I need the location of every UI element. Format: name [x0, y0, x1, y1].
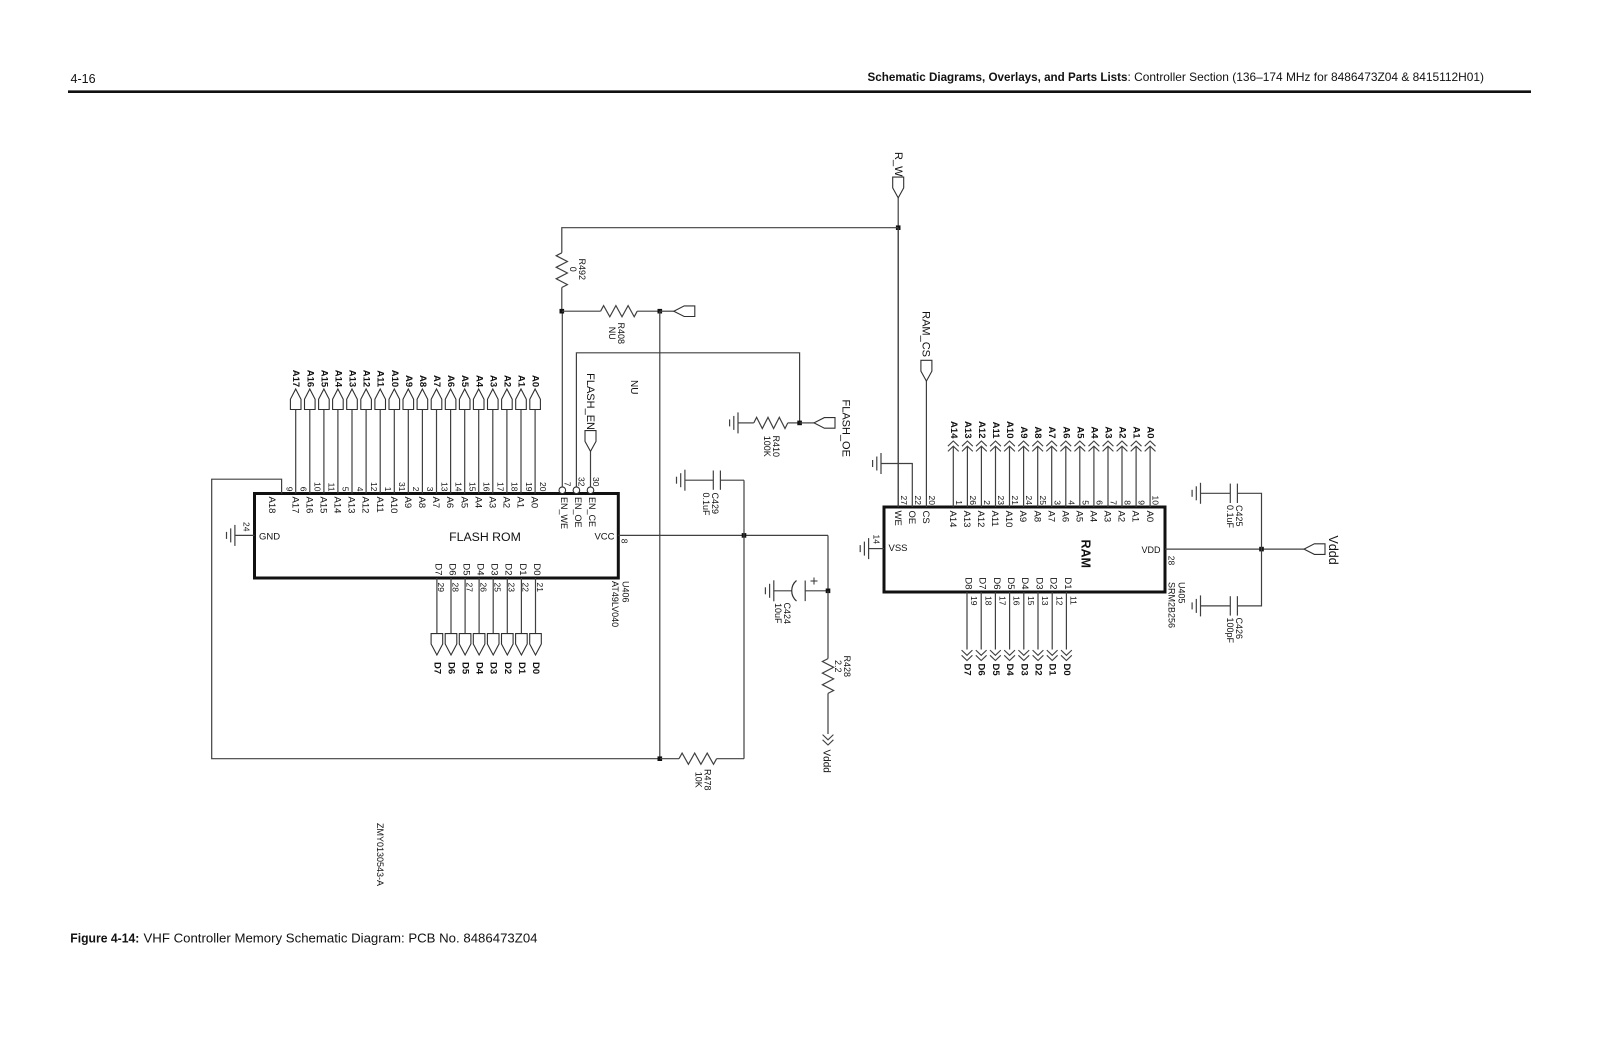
svg-text:A7: A7 [1046, 426, 1057, 438]
svg-text:23: 23 [507, 583, 517, 593]
svg-text:D1: D1 [1062, 577, 1073, 589]
svg-text:18: 18 [510, 482, 520, 492]
svg-text:A14: A14 [948, 421, 959, 439]
svg-text:A15: A15 [318, 370, 329, 388]
svg-text:A3: A3 [487, 375, 498, 387]
svg-text:A9: A9 [403, 375, 414, 387]
svg-text:23: 23 [996, 496, 1006, 506]
svg-text:11: 11 [1069, 596, 1079, 605]
svg-text:A17: A17 [290, 370, 301, 387]
svg-text:A1: A1 [515, 497, 526, 509]
svg-text:U406: U406 [621, 581, 631, 603]
svg-text:A8: A8 [1032, 426, 1043, 438]
svg-text:24: 24 [241, 522, 251, 532]
svg-text:A0: A0 [1144, 511, 1155, 523]
svg-text:CS: CS [920, 511, 931, 524]
svg-text:VHF Controller Memory Schemati: VHF Controller Memory Schematic Diagram:… [144, 932, 538, 946]
svg-text:21: 21 [1010, 496, 1020, 506]
svg-text:A1: A1 [516, 375, 527, 388]
svg-text:D5: D5 [461, 563, 472, 575]
svg-text:6: 6 [1095, 500, 1105, 505]
svg-text:10: 10 [313, 482, 323, 492]
svg-text:Vddd: Vddd [1326, 536, 1340, 565]
svg-text:A2: A2 [1116, 511, 1127, 523]
svg-text:A13: A13 [961, 511, 972, 528]
svg-text:25: 25 [1038, 496, 1048, 506]
svg-text:A7: A7 [431, 375, 442, 387]
svg-text:VSS: VSS [889, 543, 908, 554]
svg-text:RAM_CS: RAM_CS [920, 311, 932, 357]
svg-text:A1: A1 [1131, 426, 1142, 439]
svg-text:D3: D3 [488, 662, 499, 674]
svg-text:VDD: VDD [1141, 545, 1161, 555]
svg-text:EN_WE: EN_WE [559, 497, 569, 529]
svg-text:SRM2B256: SRM2B256 [1167, 582, 1177, 628]
svg-text:D1: D1 [1047, 664, 1058, 677]
svg-text:15: 15 [467, 482, 477, 492]
svg-text:A15: A15 [318, 497, 329, 514]
svg-text:NU: NU [628, 380, 639, 394]
svg-text:A10: A10 [389, 370, 400, 387]
svg-text:100K: 100K [762, 436, 772, 457]
svg-text:D8: D8 [962, 577, 973, 589]
svg-text:0.1uF: 0.1uF [1225, 505, 1235, 529]
svg-text:A17: A17 [289, 497, 300, 514]
svg-text:D6: D6 [446, 563, 457, 575]
svg-text:A12: A12 [975, 511, 986, 528]
svg-text:D2: D2 [502, 662, 513, 674]
svg-text:A10: A10 [388, 497, 399, 514]
svg-text:A0: A0 [529, 497, 540, 509]
svg-text:D3: D3 [489, 563, 500, 575]
svg-text:FLASH_OE: FLASH_OE [840, 400, 852, 457]
svg-text:R_W: R_W [892, 152, 904, 177]
svg-text:D5: D5 [990, 664, 1001, 677]
svg-text:0.1uF: 0.1uF [701, 493, 711, 517]
svg-text:A0: A0 [1145, 426, 1156, 438]
svg-text:Vddd: Vddd [820, 750, 831, 773]
svg-text:A16: A16 [303, 497, 314, 514]
svg-text:31: 31 [397, 482, 407, 492]
svg-text:A13: A13 [346, 497, 357, 514]
svg-text:U405: U405 [1176, 582, 1186, 604]
svg-text:25: 25 [493, 583, 503, 593]
svg-text:GND: GND [259, 532, 280, 543]
svg-text:D6: D6 [446, 662, 457, 674]
svg-text:3: 3 [425, 487, 435, 492]
svg-text:D1: D1 [516, 662, 527, 675]
svg-text:7: 7 [563, 482, 573, 487]
svg-text:2: 2 [411, 487, 421, 492]
svg-text:A9: A9 [1018, 426, 1029, 438]
svg-text:A12: A12 [361, 370, 372, 387]
svg-text:A6: A6 [1059, 511, 1070, 523]
svg-text:3: 3 [1052, 500, 1062, 505]
svg-text:D0: D0 [530, 662, 541, 674]
svg-text:28: 28 [1166, 556, 1176, 566]
svg-text:0: 0 [568, 267, 578, 272]
svg-text:D6: D6 [976, 664, 987, 676]
svg-text:Schematic Diagrams, Overlays,: Schematic Diagrams, Overlays, and Parts … [868, 70, 1128, 84]
svg-text:D5: D5 [1005, 577, 1016, 589]
svg-text:13: 13 [1040, 596, 1050, 606]
svg-text:A5: A5 [459, 375, 470, 388]
svg-text:A5: A5 [1074, 511, 1085, 523]
svg-text:19: 19 [969, 596, 979, 606]
svg-text:14: 14 [872, 535, 882, 545]
svg-text:A6: A6 [1060, 426, 1071, 438]
svg-text:D0: D0 [531, 563, 542, 575]
svg-text:4-16: 4-16 [71, 72, 96, 86]
svg-text:10: 10 [1151, 496, 1161, 506]
svg-text:FLASH_EN: FLASH_EN [584, 373, 596, 430]
svg-text:30: 30 [591, 477, 601, 487]
svg-text:D1: D1 [517, 563, 528, 575]
svg-text:A4: A4 [472, 497, 483, 509]
svg-text:A14: A14 [333, 370, 344, 388]
svg-text:A11: A11 [990, 422, 1001, 440]
svg-text:12: 12 [369, 482, 379, 492]
svg-text:A8: A8 [416, 497, 427, 509]
svg-text:1: 1 [383, 487, 393, 492]
svg-text:A13: A13 [962, 421, 973, 438]
svg-text:D7: D7 [431, 662, 442, 674]
svg-text:A3: A3 [486, 497, 497, 509]
svg-text:20: 20 [538, 482, 548, 492]
svg-text:ZMY0130543-A: ZMY0130543-A [375, 823, 385, 886]
svg-text:28: 28 [450, 583, 460, 593]
svg-text:22: 22 [913, 496, 923, 506]
svg-text:A2: A2 [501, 375, 512, 387]
svg-text:A7: A7 [430, 497, 441, 509]
svg-text:Figure 4-14:: Figure 4-14: [70, 932, 139, 946]
svg-text:A13: A13 [347, 370, 358, 387]
svg-text:A2: A2 [1117, 426, 1128, 438]
svg-text:5: 5 [1080, 500, 1090, 505]
svg-text:18: 18 [983, 596, 993, 606]
svg-text:OE: OE [906, 511, 917, 525]
svg-text:WE: WE [892, 511, 903, 526]
svg-text:D6: D6 [991, 577, 1002, 589]
svg-text:A0: A0 [530, 375, 541, 387]
svg-text:10uF: 10uF [773, 603, 783, 624]
svg-text:D4: D4 [474, 662, 485, 675]
svg-text:27: 27 [464, 583, 474, 593]
svg-text:17: 17 [998, 596, 1008, 606]
svg-text:A5: A5 [458, 497, 469, 509]
svg-text:FLASH ROM: FLASH ROM [449, 530, 521, 544]
svg-text:A10: A10 [1003, 511, 1014, 528]
svg-text:16: 16 [1012, 596, 1022, 606]
svg-text:A12: A12 [976, 421, 987, 438]
svg-text:D4: D4 [1019, 577, 1030, 589]
svg-text:16: 16 [482, 482, 492, 492]
svg-text:A11: A11 [989, 511, 1000, 527]
svg-text:A3: A3 [1102, 511, 1113, 523]
svg-text:A8: A8 [417, 375, 428, 387]
svg-text:D7: D7 [432, 563, 443, 575]
svg-text:D7: D7 [977, 577, 988, 589]
svg-text:VCC: VCC [594, 532, 614, 543]
svg-text:17: 17 [496, 482, 506, 492]
svg-text:D2: D2 [503, 563, 514, 575]
svg-text:9: 9 [285, 487, 295, 492]
svg-text:: Controller Section (136–174: : Controller Section (136–174 MHz for 84… [1128, 70, 1485, 84]
svg-text:11: 11 [327, 483, 337, 492]
svg-text:D4: D4 [1004, 664, 1015, 677]
svg-text:A4: A4 [1088, 511, 1099, 523]
svg-text:EN_CE: EN_CE [587, 497, 597, 527]
svg-text:D3: D3 [1033, 577, 1044, 589]
svg-text:14: 14 [453, 482, 463, 492]
svg-text:D7: D7 [962, 664, 973, 676]
svg-text:12: 12 [1054, 596, 1064, 606]
svg-text:D3: D3 [1018, 664, 1029, 676]
svg-text:100pF: 100pF [1225, 618, 1235, 644]
svg-text:27: 27 [899, 496, 909, 506]
svg-text:8: 8 [1123, 500, 1133, 505]
svg-text:A4: A4 [1088, 426, 1099, 439]
svg-text:A14: A14 [332, 497, 343, 514]
svg-text:15: 15 [1026, 596, 1036, 606]
svg-text:A14: A14 [947, 511, 958, 528]
svg-text:D2: D2 [1033, 664, 1044, 676]
svg-text:AT49LV040: AT49LV040 [610, 581, 620, 627]
svg-text:4: 4 [355, 487, 365, 492]
svg-text:A1: A1 [1130, 511, 1141, 523]
svg-text:9: 9 [1137, 500, 1147, 505]
svg-text:RAM: RAM [1079, 540, 1093, 568]
svg-text:NU: NU [607, 327, 617, 340]
svg-text:6: 6 [299, 487, 309, 492]
svg-text:A12: A12 [360, 497, 371, 514]
svg-text:D5: D5 [460, 662, 471, 675]
svg-text:4: 4 [1066, 500, 1076, 505]
svg-text:D4: D4 [475, 563, 486, 575]
svg-text:19: 19 [524, 482, 534, 492]
svg-text:21: 21 [535, 583, 545, 593]
svg-text:32: 32 [577, 477, 587, 487]
svg-text:A9: A9 [1017, 511, 1028, 523]
svg-text:A3: A3 [1103, 426, 1114, 438]
svg-text:13: 13 [439, 482, 449, 492]
svg-text:1: 1 [954, 500, 964, 505]
svg-text:A9: A9 [402, 497, 413, 509]
svg-text:A6: A6 [444, 497, 455, 509]
svg-text:7: 7 [1109, 500, 1119, 505]
svg-text:A10: A10 [1004, 421, 1015, 438]
svg-text:A8: A8 [1031, 511, 1042, 523]
svg-text:26: 26 [478, 583, 488, 593]
svg-text:26: 26 [968, 496, 978, 506]
svg-text:A2: A2 [501, 497, 512, 509]
svg-text:A11: A11 [375, 370, 386, 388]
svg-text:2: 2 [982, 500, 992, 505]
svg-text:D0: D0 [1061, 664, 1072, 676]
svg-text:A16: A16 [304, 370, 315, 387]
svg-text:8: 8 [620, 539, 630, 544]
svg-text:A7: A7 [1045, 511, 1056, 523]
svg-text:A6: A6 [445, 375, 456, 387]
svg-text:24: 24 [1024, 496, 1034, 506]
svg-text:5: 5 [341, 487, 351, 492]
svg-text:2.2: 2.2 [833, 660, 843, 673]
svg-text:22: 22 [521, 583, 531, 593]
svg-text:D2: D2 [1048, 577, 1059, 589]
svg-text:A18: A18 [266, 497, 277, 514]
svg-text:29: 29 [436, 583, 446, 593]
svg-text:A5: A5 [1074, 426, 1085, 439]
svg-text:A4: A4 [473, 375, 484, 388]
svg-text:EN_OE: EN_OE [573, 497, 583, 528]
svg-text:10K: 10K [694, 772, 704, 788]
svg-text:20: 20 [927, 496, 937, 506]
svg-text:A11: A11 [374, 497, 385, 513]
